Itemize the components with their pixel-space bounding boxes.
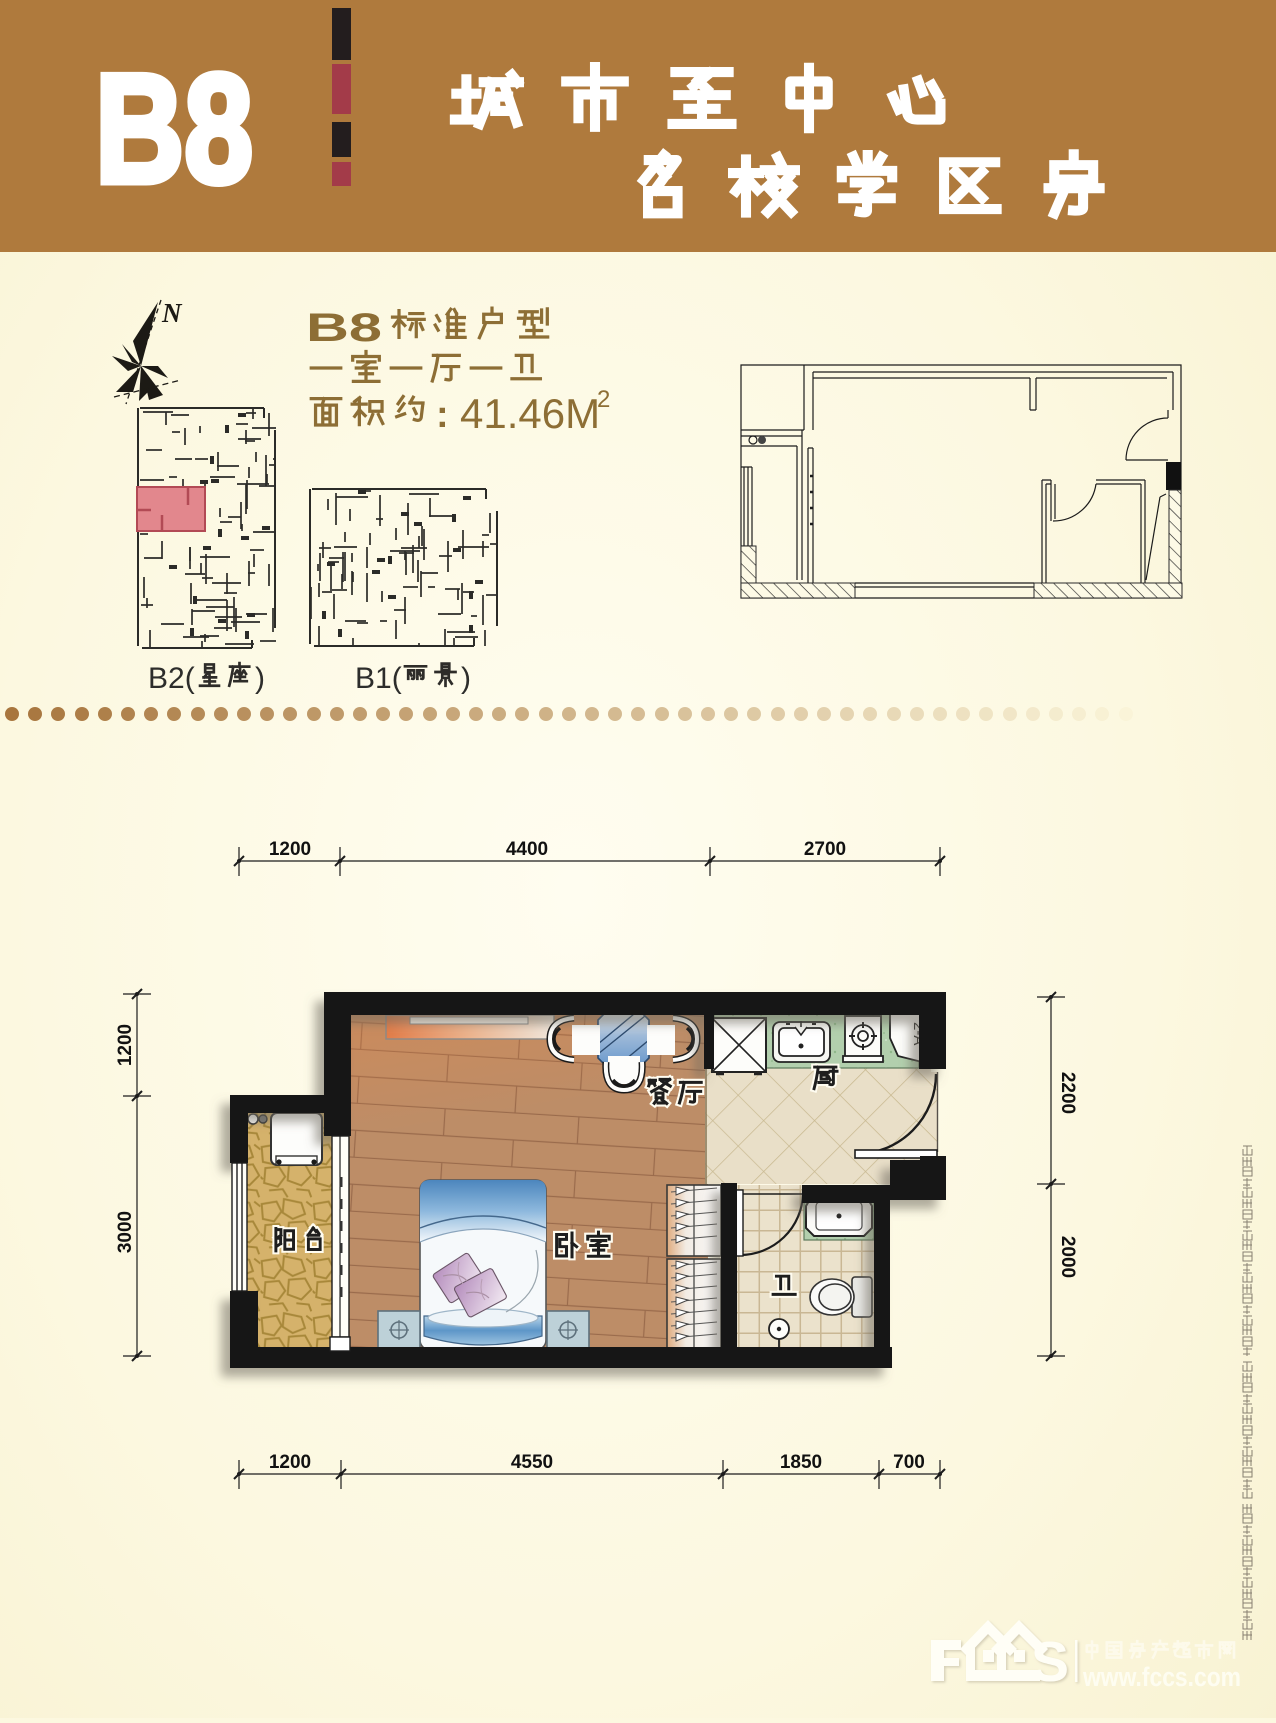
svg-text:700: 700 — [893, 1452, 925, 1473]
svg-text:2000: 2000 — [1057, 1236, 1078, 1278]
svg-text:1200: 1200 — [115, 1024, 136, 1066]
svg-text::: : — [436, 394, 449, 436]
svg-text:): ) — [461, 662, 471, 695]
svg-text:S: S — [1031, 1630, 1069, 1694]
svg-text:B2(: B2( — [148, 662, 195, 695]
svg-text:1200: 1200 — [269, 1452, 311, 1473]
svg-text:www.fccs.com: www.fccs.com — [1082, 1662, 1241, 1692]
svg-text:4400: 4400 — [506, 839, 548, 860]
svg-text:2: 2 — [597, 386, 610, 413]
svg-text:1850: 1850 — [780, 1452, 822, 1473]
svg-text:1200: 1200 — [269, 839, 311, 860]
svg-text:4550: 4550 — [511, 1452, 553, 1473]
svg-text:B8: B8 — [95, 42, 253, 215]
svg-text:3000: 3000 — [115, 1211, 136, 1253]
svg-text:N: N — [161, 298, 183, 328]
svg-text:2700: 2700 — [804, 839, 846, 860]
svg-text:B8: B8 — [306, 306, 382, 350]
svg-text:): ) — [255, 662, 265, 695]
svg-text:41.46M: 41.46M — [460, 390, 600, 437]
svg-text:2200: 2200 — [1057, 1072, 1078, 1114]
svg-text:B1(: B1( — [355, 662, 402, 695]
